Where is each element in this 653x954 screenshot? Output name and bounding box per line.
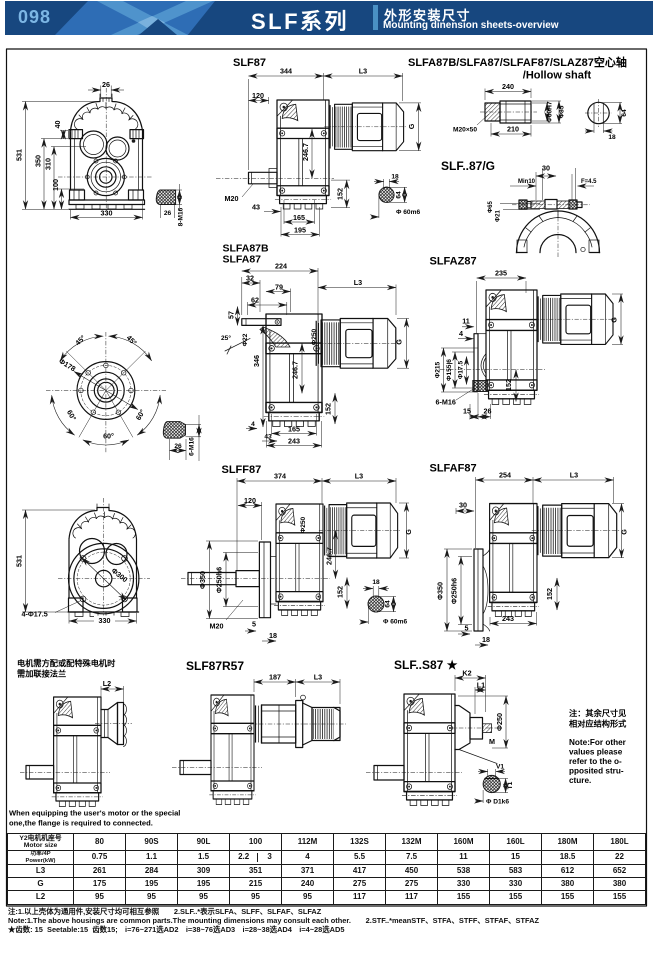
svg-text:18: 18: [608, 134, 616, 141]
svg-text:18: 18: [269, 631, 277, 640]
svg-text:32: 32: [246, 274, 254, 283]
svg-text:M: M: [489, 737, 495, 746]
svg-text:243: 243: [502, 614, 514, 623]
svg-text:165: 165: [288, 425, 300, 434]
svg-text:152: 152: [336, 586, 345, 598]
svg-text:Φ D1k6: Φ D1k6: [486, 799, 509, 806]
svg-text:26: 26: [164, 210, 172, 217]
svg-text:5: 5: [465, 624, 469, 633]
svg-text:Φ250: Φ250: [300, 516, 307, 533]
svg-text:Note:For other: Note:For other: [569, 738, 627, 747]
svg-text:120: 120: [244, 496, 256, 505]
svg-text:243: 243: [288, 437, 300, 446]
svg-text:224: 224: [275, 262, 287, 271]
svg-text:374: 374: [274, 472, 286, 481]
svg-text:M20×50: M20×50: [453, 127, 477, 134]
svg-text:195: 195: [294, 226, 306, 235]
svg-text:152: 152: [504, 379, 513, 391]
svg-text:4: 4: [251, 421, 255, 428]
svg-text:4: 4: [459, 329, 463, 338]
svg-text:/Hollow shaft: /Hollow shaft: [523, 70, 592, 82]
svg-text:Φ250: Φ250: [495, 713, 504, 731]
svg-text:SLFA87B/SLFA87/SLFAF87/SLAZ87空: SLFA87B/SLFA87/SLFAF87/SLAZ87空心轴: [408, 55, 627, 69]
svg-text:L3: L3: [355, 472, 363, 481]
svg-text:Φ300: Φ300: [110, 566, 130, 584]
svg-text:18: 18: [372, 579, 380, 586]
svg-text:26: 26: [174, 443, 182, 450]
svg-text:310: 310: [44, 158, 53, 170]
svg-text:531: 531: [15, 149, 24, 161]
svg-text:235: 235: [495, 269, 507, 278]
svg-text:cture.: cture.: [569, 776, 591, 785]
svg-text:Φ350: Φ350: [198, 571, 207, 589]
svg-text:57: 57: [227, 311, 236, 319]
svg-text:152: 152: [545, 588, 554, 600]
svg-text:26: 26: [102, 80, 110, 89]
svg-text:26: 26: [484, 407, 492, 416]
svg-text:60°: 60°: [134, 408, 147, 422]
svg-text:60°: 60°: [65, 408, 78, 422]
svg-text:M20: M20: [210, 622, 224, 631]
svg-text:Φ21: Φ21: [496, 210, 502, 222]
svg-text:152: 152: [336, 188, 345, 200]
svg-text:350: 350: [34, 155, 43, 167]
svg-text:V1: V1: [496, 764, 504, 771]
svg-text:SLFF87: SLFF87: [222, 464, 262, 476]
svg-text:注：其余尺寸见: 注：其余尺寸见: [569, 708, 626, 718]
svg-text:L1: L1: [477, 681, 485, 690]
svg-text:15: 15: [463, 407, 471, 416]
svg-text:60°: 60°: [103, 432, 114, 441]
svg-text:Φ250: Φ250: [311, 328, 318, 345]
svg-text:5: 5: [252, 620, 256, 629]
svg-text:SLF..S87 ★: SLF..S87 ★: [394, 658, 458, 672]
svg-text:30: 30: [542, 164, 550, 173]
svg-text:L3: L3: [359, 67, 367, 76]
svg-text:4-Φ17.5: 4-Φ17.5: [22, 610, 48, 619]
svg-text:G: G: [395, 339, 404, 345]
svg-text:79: 79: [275, 283, 283, 292]
svg-text:187: 187: [269, 673, 281, 682]
svg-text:254: 254: [499, 471, 511, 480]
svg-text:330: 330: [99, 616, 111, 625]
svg-text:25°: 25°: [221, 334, 231, 342]
svg-text:K2: K2: [462, 669, 471, 678]
svg-text:Min10: Min10: [518, 179, 536, 185]
svg-text:G: G: [407, 123, 416, 129]
svg-text:18: 18: [482, 635, 490, 644]
svg-text:45°: 45°: [125, 333, 139, 347]
svg-text:531: 531: [15, 555, 24, 567]
svg-text:330: 330: [101, 209, 113, 218]
svg-text:30: 30: [459, 501, 467, 510]
svg-text:100: 100: [51, 179, 60, 191]
svg-text:246.7: 246.7: [301, 143, 310, 161]
svg-text:G: G: [620, 529, 629, 535]
svg-text:Φ 60m6: Φ 60m6: [383, 619, 407, 626]
svg-text:SLF87: SLF87: [233, 57, 266, 69]
svg-text:Φ250h6: Φ250h6: [450, 578, 459, 604]
svg-text:210: 210: [507, 125, 519, 134]
svg-text:6-M16: 6-M16: [436, 398, 456, 407]
svg-text:Φ60H7: Φ60H7: [547, 101, 554, 123]
svg-text:F=4.5: F=4.5: [581, 179, 597, 185]
svg-text:电机需方配或配特殊电机时: 电机需方配或配特殊电机时: [17, 658, 116, 668]
svg-text:64: 64: [621, 109, 628, 117]
svg-text:L3: L3: [354, 278, 362, 287]
svg-text:SLFA87: SLFA87: [223, 254, 262, 266]
svg-text:120: 120: [252, 91, 264, 100]
svg-text:pposited stru-: pposited stru-: [569, 767, 624, 776]
svg-text:SLF87R57: SLF87R57: [186, 659, 244, 673]
svg-text:64: 64: [385, 600, 392, 608]
svg-text:Φ65: Φ65: [488, 201, 494, 213]
svg-text:346: 346: [252, 355, 261, 367]
svg-text:165: 165: [293, 213, 305, 222]
svg-text:344: 344: [280, 67, 292, 76]
svg-text:62: 62: [251, 296, 259, 305]
svg-text:240: 240: [502, 82, 514, 91]
svg-text:M20: M20: [225, 194, 239, 203]
svg-text:refer to the o-: refer to the o-: [569, 757, 622, 766]
svg-text:values please: values please: [569, 748, 623, 757]
svg-text:L3: L3: [314, 673, 322, 682]
svg-text:Φ350: Φ350: [436, 582, 445, 600]
svg-text:40: 40: [53, 121, 62, 129]
svg-text:SLF..87/G: SLF..87/G: [441, 159, 495, 173]
svg-text:Φ250h6: Φ250h6: [215, 567, 224, 593]
svg-text:需加联接法兰: 需加联接法兰: [17, 669, 66, 679]
svg-text:152: 152: [324, 403, 333, 415]
svg-text:6-M16: 6-M16: [189, 437, 196, 456]
svg-text:L2: L2: [103, 679, 111, 688]
svg-text:相对应结构形式: 相对应结构形式: [569, 719, 627, 729]
svg-text:SLFAF87: SLFAF87: [430, 463, 477, 475]
svg-text:When equipping the user's moto: When equipping the user's motor or the s…: [9, 809, 180, 818]
svg-text:Φ85: Φ85: [559, 105, 566, 118]
svg-text:43: 43: [264, 434, 272, 441]
svg-text:64: 64: [396, 191, 403, 199]
svg-text:T1: T1: [507, 781, 514, 789]
svg-text:L3: L3: [570, 471, 578, 480]
svg-text:Φ22: Φ22: [242, 333, 249, 346]
svg-text:8-M16: 8-M16: [178, 207, 185, 226]
svg-text:Φ 60m6: Φ 60m6: [396, 209, 420, 216]
svg-text:246.7: 246.7: [325, 547, 334, 565]
svg-text:G: G: [610, 317, 619, 323]
svg-text:43: 43: [252, 203, 260, 212]
svg-text:SLFAZ87: SLFAZ87: [430, 256, 477, 268]
svg-text:246.7: 246.7: [291, 361, 300, 379]
svg-text:18: 18: [391, 174, 399, 181]
svg-text:11: 11: [462, 317, 470, 326]
svg-text:G: G: [404, 529, 413, 535]
svg-text:one,the flange is required to: one,the flange is required to connected.: [9, 819, 153, 828]
